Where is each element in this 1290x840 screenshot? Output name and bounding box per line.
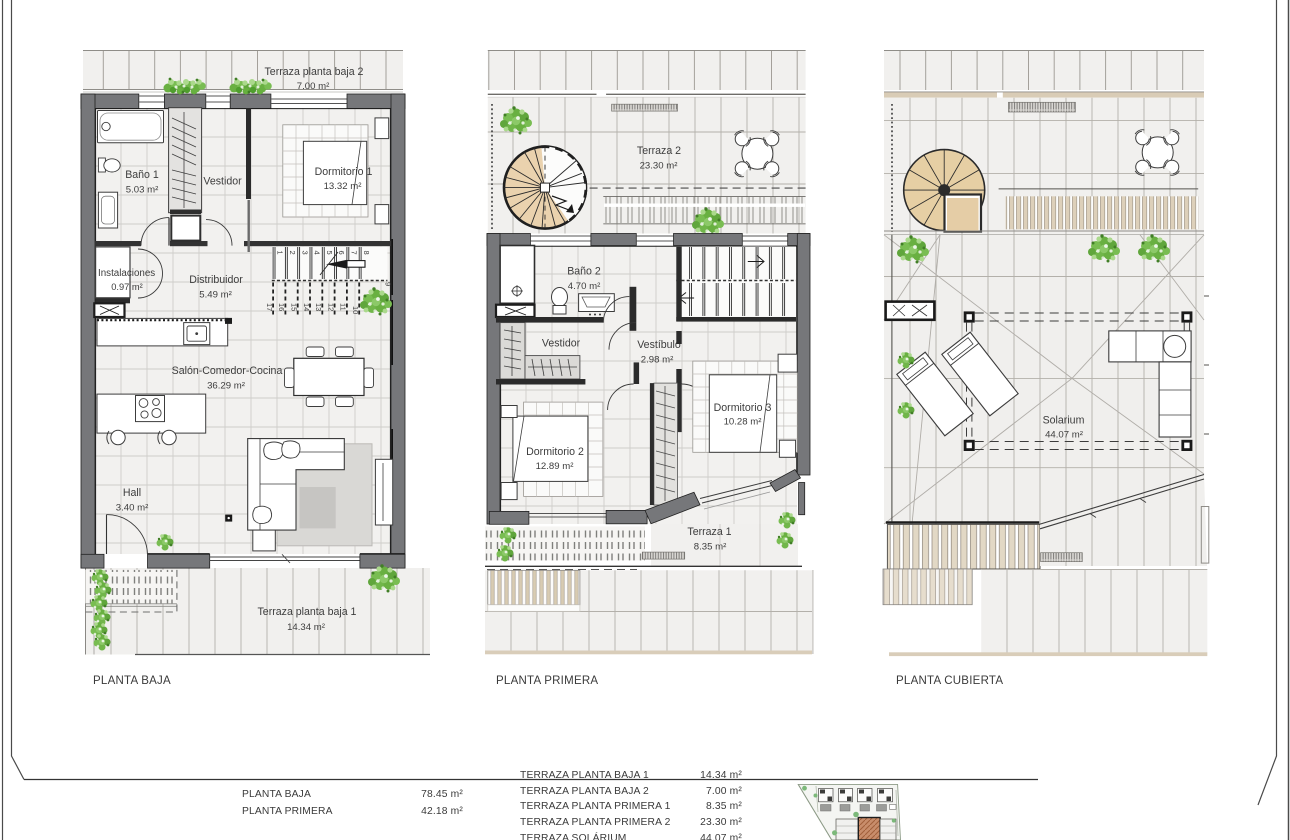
svg-text:Vestíbulo: Vestíbulo	[637, 339, 681, 351]
svg-text:44.07 m²: 44.07 m²	[700, 833, 742, 840]
svg-text:3.40 m²: 3.40 m²	[116, 503, 149, 514]
svg-text:Terraza planta baja 2: Terraza planta baja 2	[265, 66, 364, 78]
svg-text:Terraza 1: Terraza 1	[687, 526, 731, 538]
svg-text:TERRAZA PLANTA BAJA 1: TERRAZA PLANTA BAJA 1	[520, 770, 649, 781]
svg-text:7.00 m²: 7.00 m²	[706, 786, 742, 797]
svg-text:9: 9	[384, 282, 393, 286]
svg-text:2.98 m²: 2.98 m²	[641, 355, 674, 366]
svg-text:Distribuidor: Distribuidor	[189, 274, 243, 286]
svg-text:13.32 m²: 13.32 m²	[324, 181, 363, 192]
svg-text:Terraza 2: Terraza 2	[637, 145, 681, 157]
svg-text:Solarium: Solarium	[1043, 415, 1085, 427]
svg-text:4: 4	[313, 251, 322, 255]
svg-text:15: 15	[290, 303, 299, 311]
svg-text:10.28 m²: 10.28 m²	[724, 417, 763, 428]
svg-text:44.07 m²: 44.07 m²	[1045, 430, 1084, 441]
svg-text:Terraza planta baja 1: Terraza planta baja 1	[258, 606, 357, 618]
svg-text:Hall: Hall	[123, 487, 141, 499]
svg-text:PLANTA PRIMERA: PLANTA PRIMERA	[242, 806, 333, 817]
svg-text:3: 3	[300, 251, 309, 255]
svg-text:7.00 m²: 7.00 m²	[297, 81, 330, 92]
svg-text:14: 14	[302, 303, 311, 311]
svg-text:10: 10	[351, 306, 360, 314]
svg-text:7: 7	[350, 251, 359, 255]
svg-text:PLANTA CUBIERTA: PLANTA CUBIERTA	[896, 675, 1003, 687]
svg-text:42.18 m²: 42.18 m²	[421, 806, 463, 817]
svg-text:14.34 m²: 14.34 m²	[700, 770, 742, 781]
svg-text:Dormitorio 3: Dormitorio 3	[714, 402, 772, 414]
svg-text:1: 1	[276, 251, 285, 255]
svg-text:Baño 1: Baño 1	[125, 169, 159, 181]
svg-text:23.30 m²: 23.30 m²	[640, 161, 679, 172]
svg-text:PLANTA PRIMERA: PLANTA PRIMERA	[496, 675, 598, 687]
svg-text:TERRAZA SOLÁRIUM: TERRAZA SOLÁRIUM	[520, 831, 627, 840]
svg-text:PLANTA BAJA: PLANTA BAJA	[242, 789, 311, 800]
svg-text:TERRAZA PLANTA PRIMERA 2: TERRAZA PLANTA PRIMERA 2	[520, 817, 671, 828]
svg-text:Vestidor: Vestidor	[203, 176, 242, 188]
svg-text:6: 6	[337, 251, 346, 255]
svg-text:78.45 m²: 78.45 m²	[421, 789, 463, 800]
svg-text:Instalaciones: Instalaciones	[98, 268, 155, 279]
svg-text:Dormitorio 1: Dormitorio 1	[315, 166, 373, 178]
svg-text:13: 13	[314, 303, 323, 311]
svg-text:Vestidor: Vestidor	[542, 338, 581, 350]
svg-text:8.35 m²: 8.35 m²	[694, 542, 727, 553]
svg-text:36.29 m²: 36.29 m²	[207, 381, 246, 392]
svg-text:4.70 m²: 4.70 m²	[568, 281, 601, 292]
svg-text:TERRAZA PLANTA PRIMERA 1: TERRAZA PLANTA PRIMERA 1	[520, 801, 671, 812]
svg-text:12: 12	[326, 303, 335, 311]
svg-text:23.30 m²: 23.30 m²	[700, 817, 742, 828]
svg-text:17: 17	[265, 303, 274, 311]
svg-text:TERRAZA PLANTA BAJA 2: TERRAZA PLANTA BAJA 2	[520, 786, 649, 797]
svg-text:8.35 m²: 8.35 m²	[706, 801, 742, 812]
svg-text:16: 16	[277, 303, 286, 311]
svg-text:14.34 m²: 14.34 m²	[287, 622, 326, 633]
svg-text:8: 8	[362, 251, 371, 255]
svg-text:5: 5	[325, 251, 334, 255]
svg-text:12.89 m²: 12.89 m²	[536, 461, 575, 472]
svg-text:Baño 2: Baño 2	[567, 266, 601, 278]
svg-text:Dormitorio 2: Dormitorio 2	[526, 446, 584, 458]
svg-text:2: 2	[288, 251, 297, 255]
svg-text:5.03 m²: 5.03 m²	[126, 185, 159, 196]
svg-text:PLANTA BAJA: PLANTA BAJA	[93, 675, 171, 687]
svg-text:Salón-Comedor-Cocina: Salón-Comedor-Cocina	[172, 365, 283, 377]
svg-text:0.97 m²: 0.97 m²	[111, 282, 143, 292]
svg-text:5.49 m²: 5.49 m²	[199, 290, 232, 301]
svg-text:11: 11	[339, 303, 348, 311]
